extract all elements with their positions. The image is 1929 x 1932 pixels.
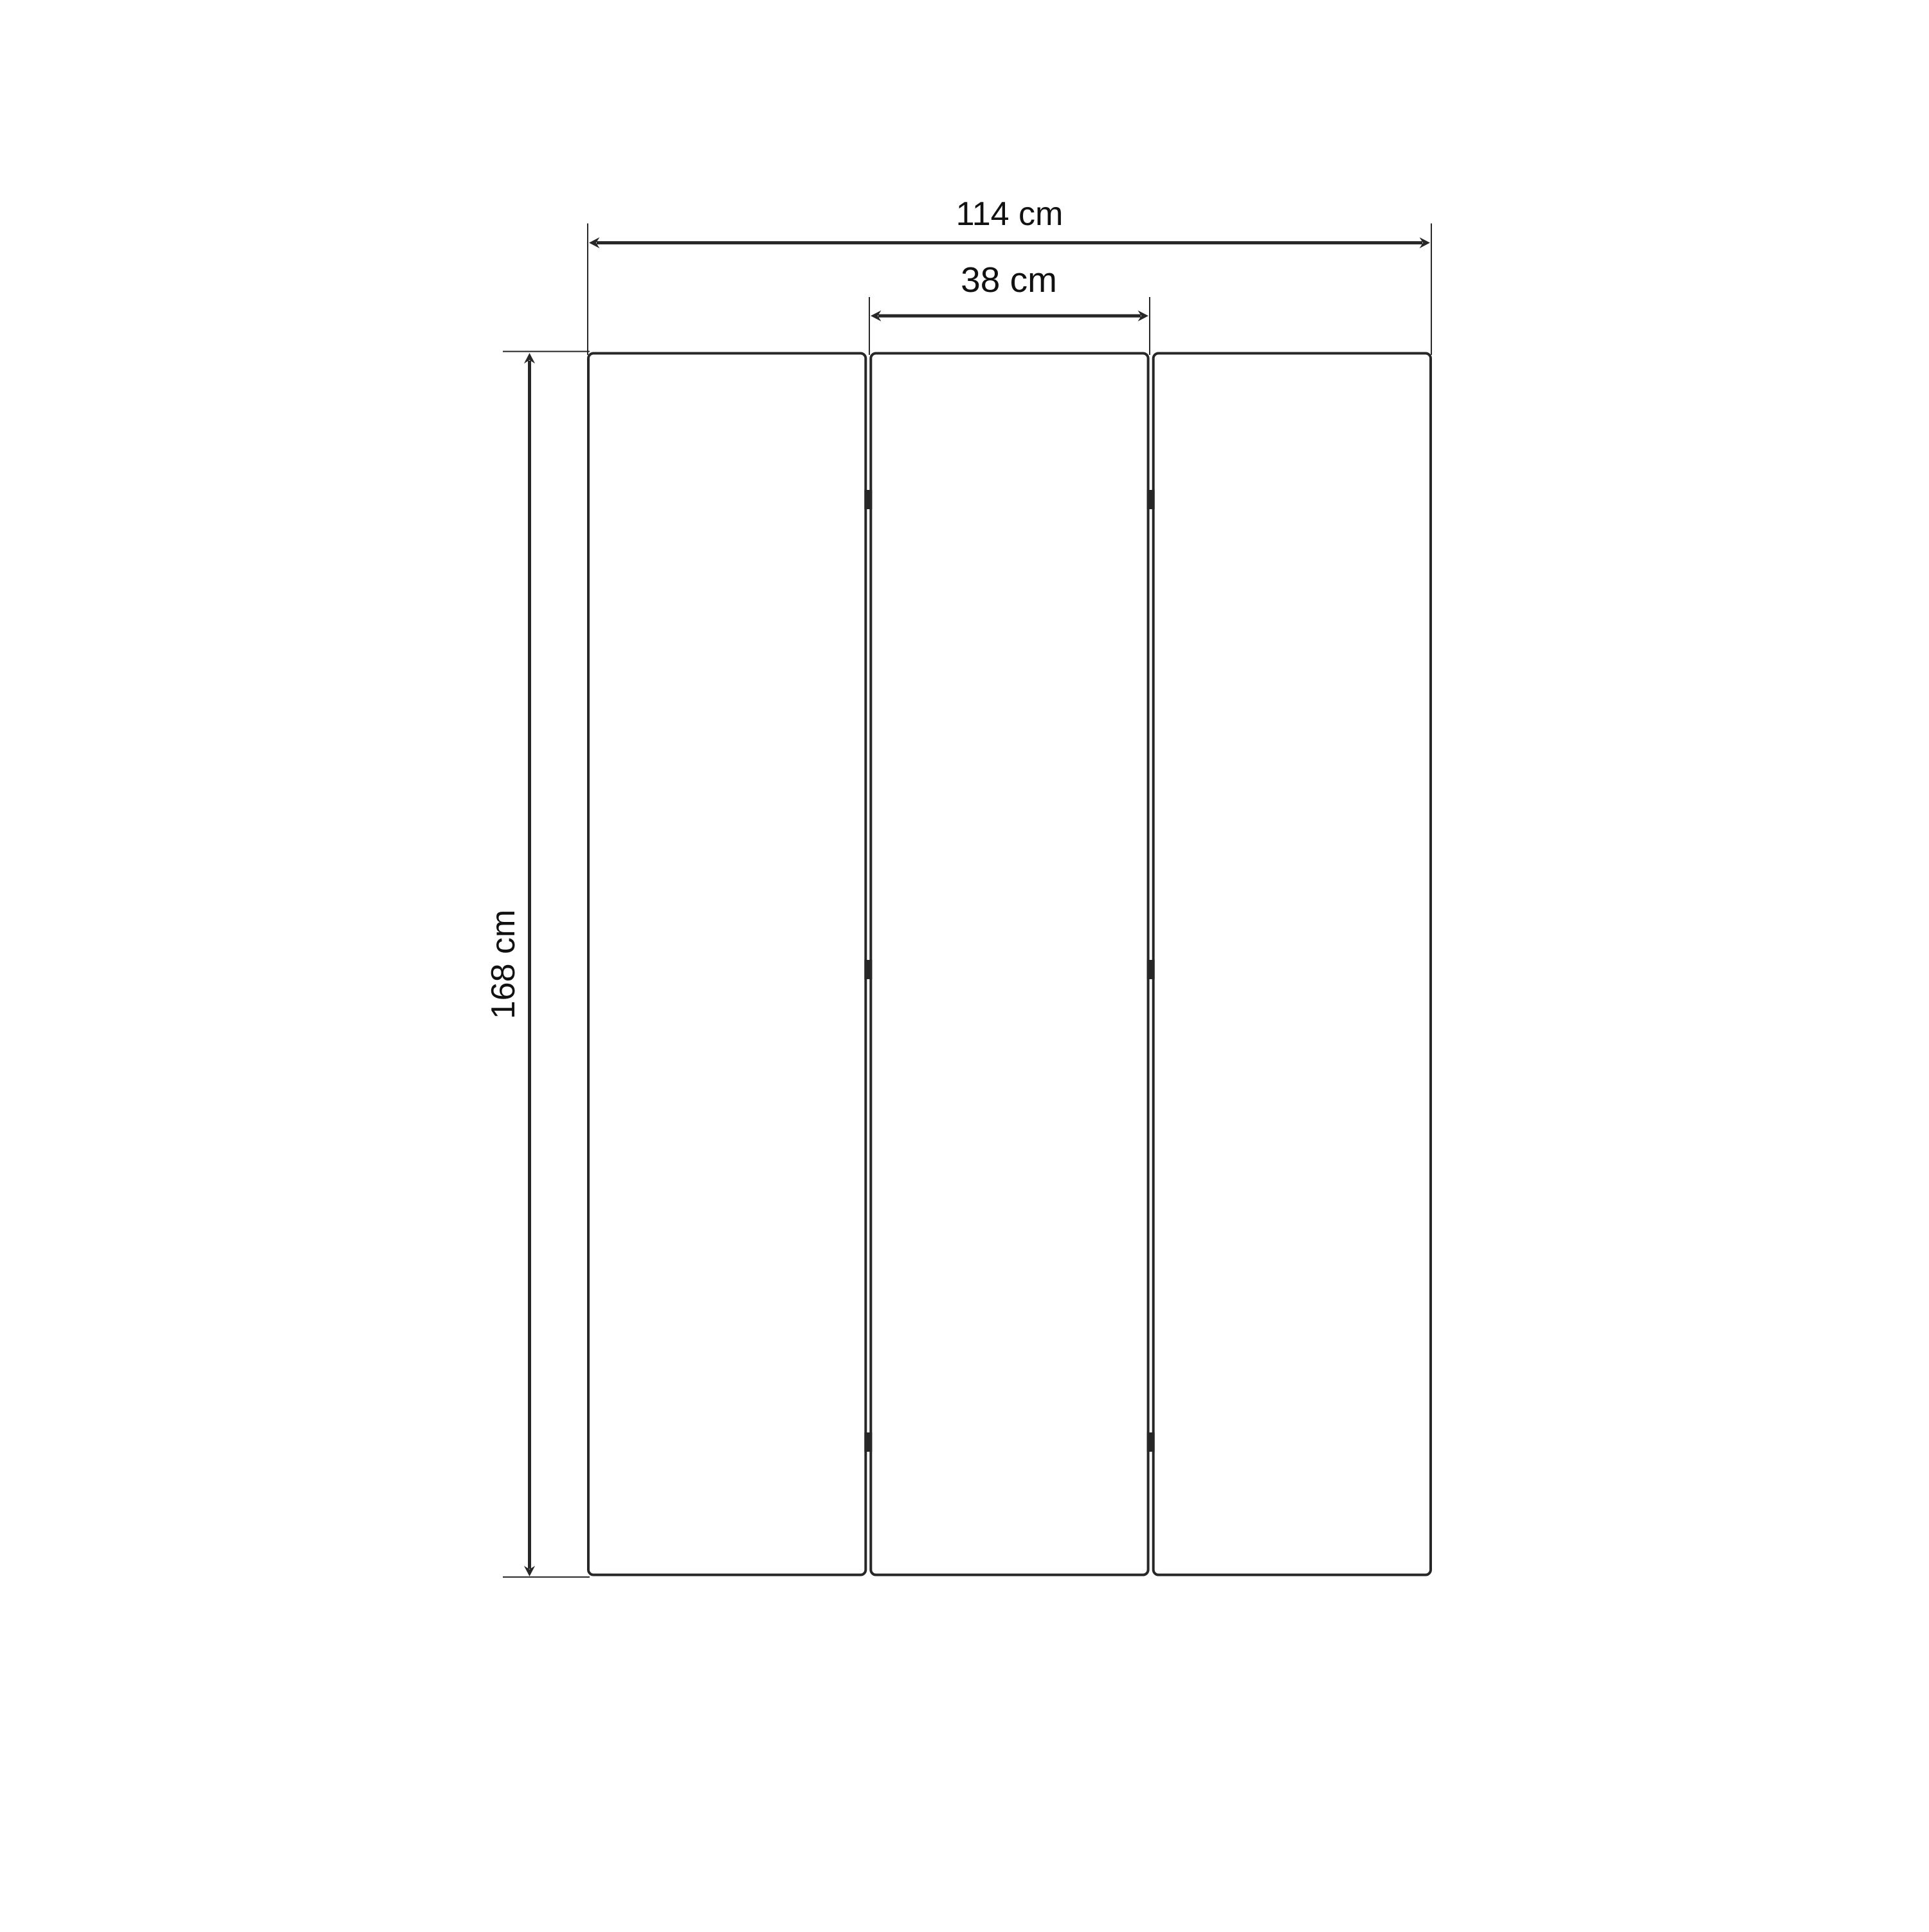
svg-text:114 cm: 114 cm (956, 195, 1064, 233)
svg-text:38 cm: 38 cm (961, 260, 1057, 300)
svg-text:168 cm: 168 cm (485, 910, 522, 1020)
